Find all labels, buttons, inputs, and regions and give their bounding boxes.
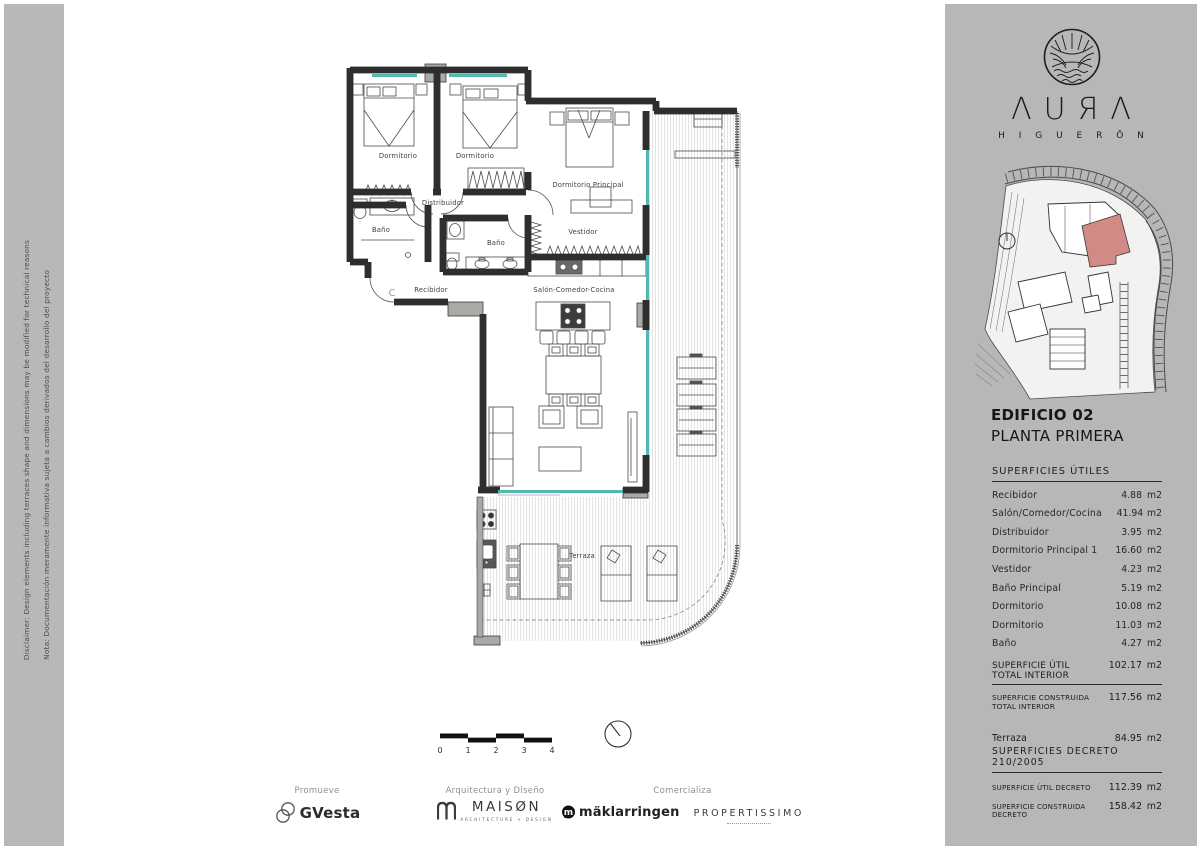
decreto-util: SUPERFICIE ÚTIL DECRETO112.39m2	[992, 782, 1162, 793]
site-plan-thumbnail	[970, 164, 1175, 409]
surfaces-title: SUPERFICIES ÚTILES	[992, 466, 1162, 482]
label-vestidor: Vestidor	[568, 228, 597, 236]
promoter-label: Promueve	[262, 786, 372, 796]
label-terraza: Terraza	[568, 552, 595, 560]
surfaces-section: SUPERFICIES ÚTILES Recibidor4.88m2 Salón…	[992, 466, 1162, 649]
aura-emblem-icon	[1042, 26, 1102, 90]
propertissimo-logo: PROPERTISSIMO	[694, 808, 804, 819]
sales-block: Comercializa m mäklarringen PROPERTISSIM…	[590, 786, 775, 824]
window-glazing	[372, 76, 648, 492]
decreto-section: SUPERFICIES DECRETO 210/2005 SUPERFICIE …	[992, 746, 1162, 819]
decreto-title: SUPERFICIES DECRETO 210/2005	[992, 746, 1162, 773]
info-sidebar: ΛUЯΛ H I G U E R Ō N	[945, 4, 1197, 846]
gvesta-logo: GVesta	[300, 804, 361, 822]
promoter-block: Promueve GVesta	[262, 786, 372, 825]
surface-row: Salón/Comedor/Cocina41.94m2	[992, 508, 1162, 519]
title-block: EDIFICIO 02 PLANTA PRIMERA	[991, 406, 1124, 445]
surface-row: Dormitorio10.08m2	[992, 601, 1162, 612]
scale-tick-1: 1	[465, 746, 470, 755]
scale-tick-2: 2	[493, 746, 498, 755]
surface-row: Dormitorio11.03m2	[992, 620, 1162, 631]
surface-row: Recibidor4.88m2	[992, 490, 1162, 501]
scale-tick-3: 3	[521, 746, 526, 755]
propertissimo-tagline-line	[727, 823, 771, 824]
surface-row: Distribuidor3.95m2	[992, 527, 1162, 538]
architect-label: Arquitectura y Diseño	[430, 786, 560, 796]
brand-subtitle: H I G U E R Ō N	[945, 131, 1197, 141]
brand-wordmark: ΛUЯΛ	[945, 92, 1197, 127]
floor-plan-drawing: Dormitorio Dormitorio Dormitorio Princip…	[330, 50, 770, 770]
maklarringen-logo: mäklarringen	[579, 805, 680, 820]
nota-vertical-text: Nota: Documentación meramente informativ…	[42, 270, 51, 660]
surfaces-rows: Recibidor4.88m2 Salón/Comedor/Cocina41.9…	[992, 490, 1162, 650]
scale-tick-0: 0	[437, 746, 442, 755]
architect-block: Arquitectura y Diseño MAISØN ARCHITECTUR…	[430, 786, 560, 822]
svg-text:m: m	[564, 808, 573, 818]
label-dormitorio-1: Dormitorio	[379, 152, 417, 160]
label-salon: Salón-Comedor-Cocina	[533, 286, 614, 294]
surface-row: Baño4.27m2	[992, 638, 1162, 649]
scale-tick-4: 4	[549, 746, 554, 755]
surface-row: Baño Principal5.19m2	[992, 583, 1162, 594]
label-dormitorio-principal: Dormitorio Principal	[552, 181, 623, 189]
maison-sub-label: ARCHITECTURE + DESIGN	[460, 817, 552, 822]
sales-label: Comercializa	[590, 786, 775, 796]
plan-sheet: Nota: Documentación meramente informativ…	[0, 0, 1200, 850]
maison-logo: MAISØN	[460, 801, 552, 815]
surface-row: Dormitorio Principal 116.60m2	[992, 545, 1162, 556]
floor-title: PLANTA PRIMERA	[991, 427, 1124, 445]
label-distribuidor: Distribuidor	[422, 199, 464, 207]
label-entrance-letter: C	[389, 288, 396, 299]
left-margin-strip: Nota: Documentación meramente informativ…	[4, 4, 64, 846]
total-util-interior: SUPERFICIE ÚTIL TOTAL INTERIOR102.17m2	[992, 660, 1162, 685]
label-dormitorio-2: Dormitorio	[456, 152, 494, 160]
label-banio-1: Baño	[372, 226, 390, 234]
total-terraza: Terraza84.95m2	[992, 733, 1162, 744]
gvesta-rings-icon	[274, 801, 296, 825]
decreto-construida: SUPERFICIE CONSTRUIDA DECRETO158.42m2	[992, 801, 1162, 819]
label-banio-2: Baño	[487, 239, 505, 247]
disclaimer-vertical-text: Disclaimer: Design elements including te…	[22, 240, 31, 660]
label-recibidor: Recibidor	[414, 286, 448, 294]
maklarringen-bubble-icon: m	[561, 805, 576, 820]
maison-m-icon	[437, 801, 456, 821]
north-indicator-icon	[605, 721, 631, 747]
building-title: EDIFICIO 02	[991, 406, 1124, 424]
surface-row: Vestidor4.23m2	[992, 564, 1162, 575]
total-construida-interior: SUPERFICIE CONSTRUIDA TOTAL INTERIOR117.…	[992, 692, 1162, 711]
totals-section: SUPERFICIE ÚTIL TOTAL INTERIOR102.17m2 S…	[992, 660, 1162, 744]
scale-bar: 0 1 2 3 4	[437, 734, 554, 756]
